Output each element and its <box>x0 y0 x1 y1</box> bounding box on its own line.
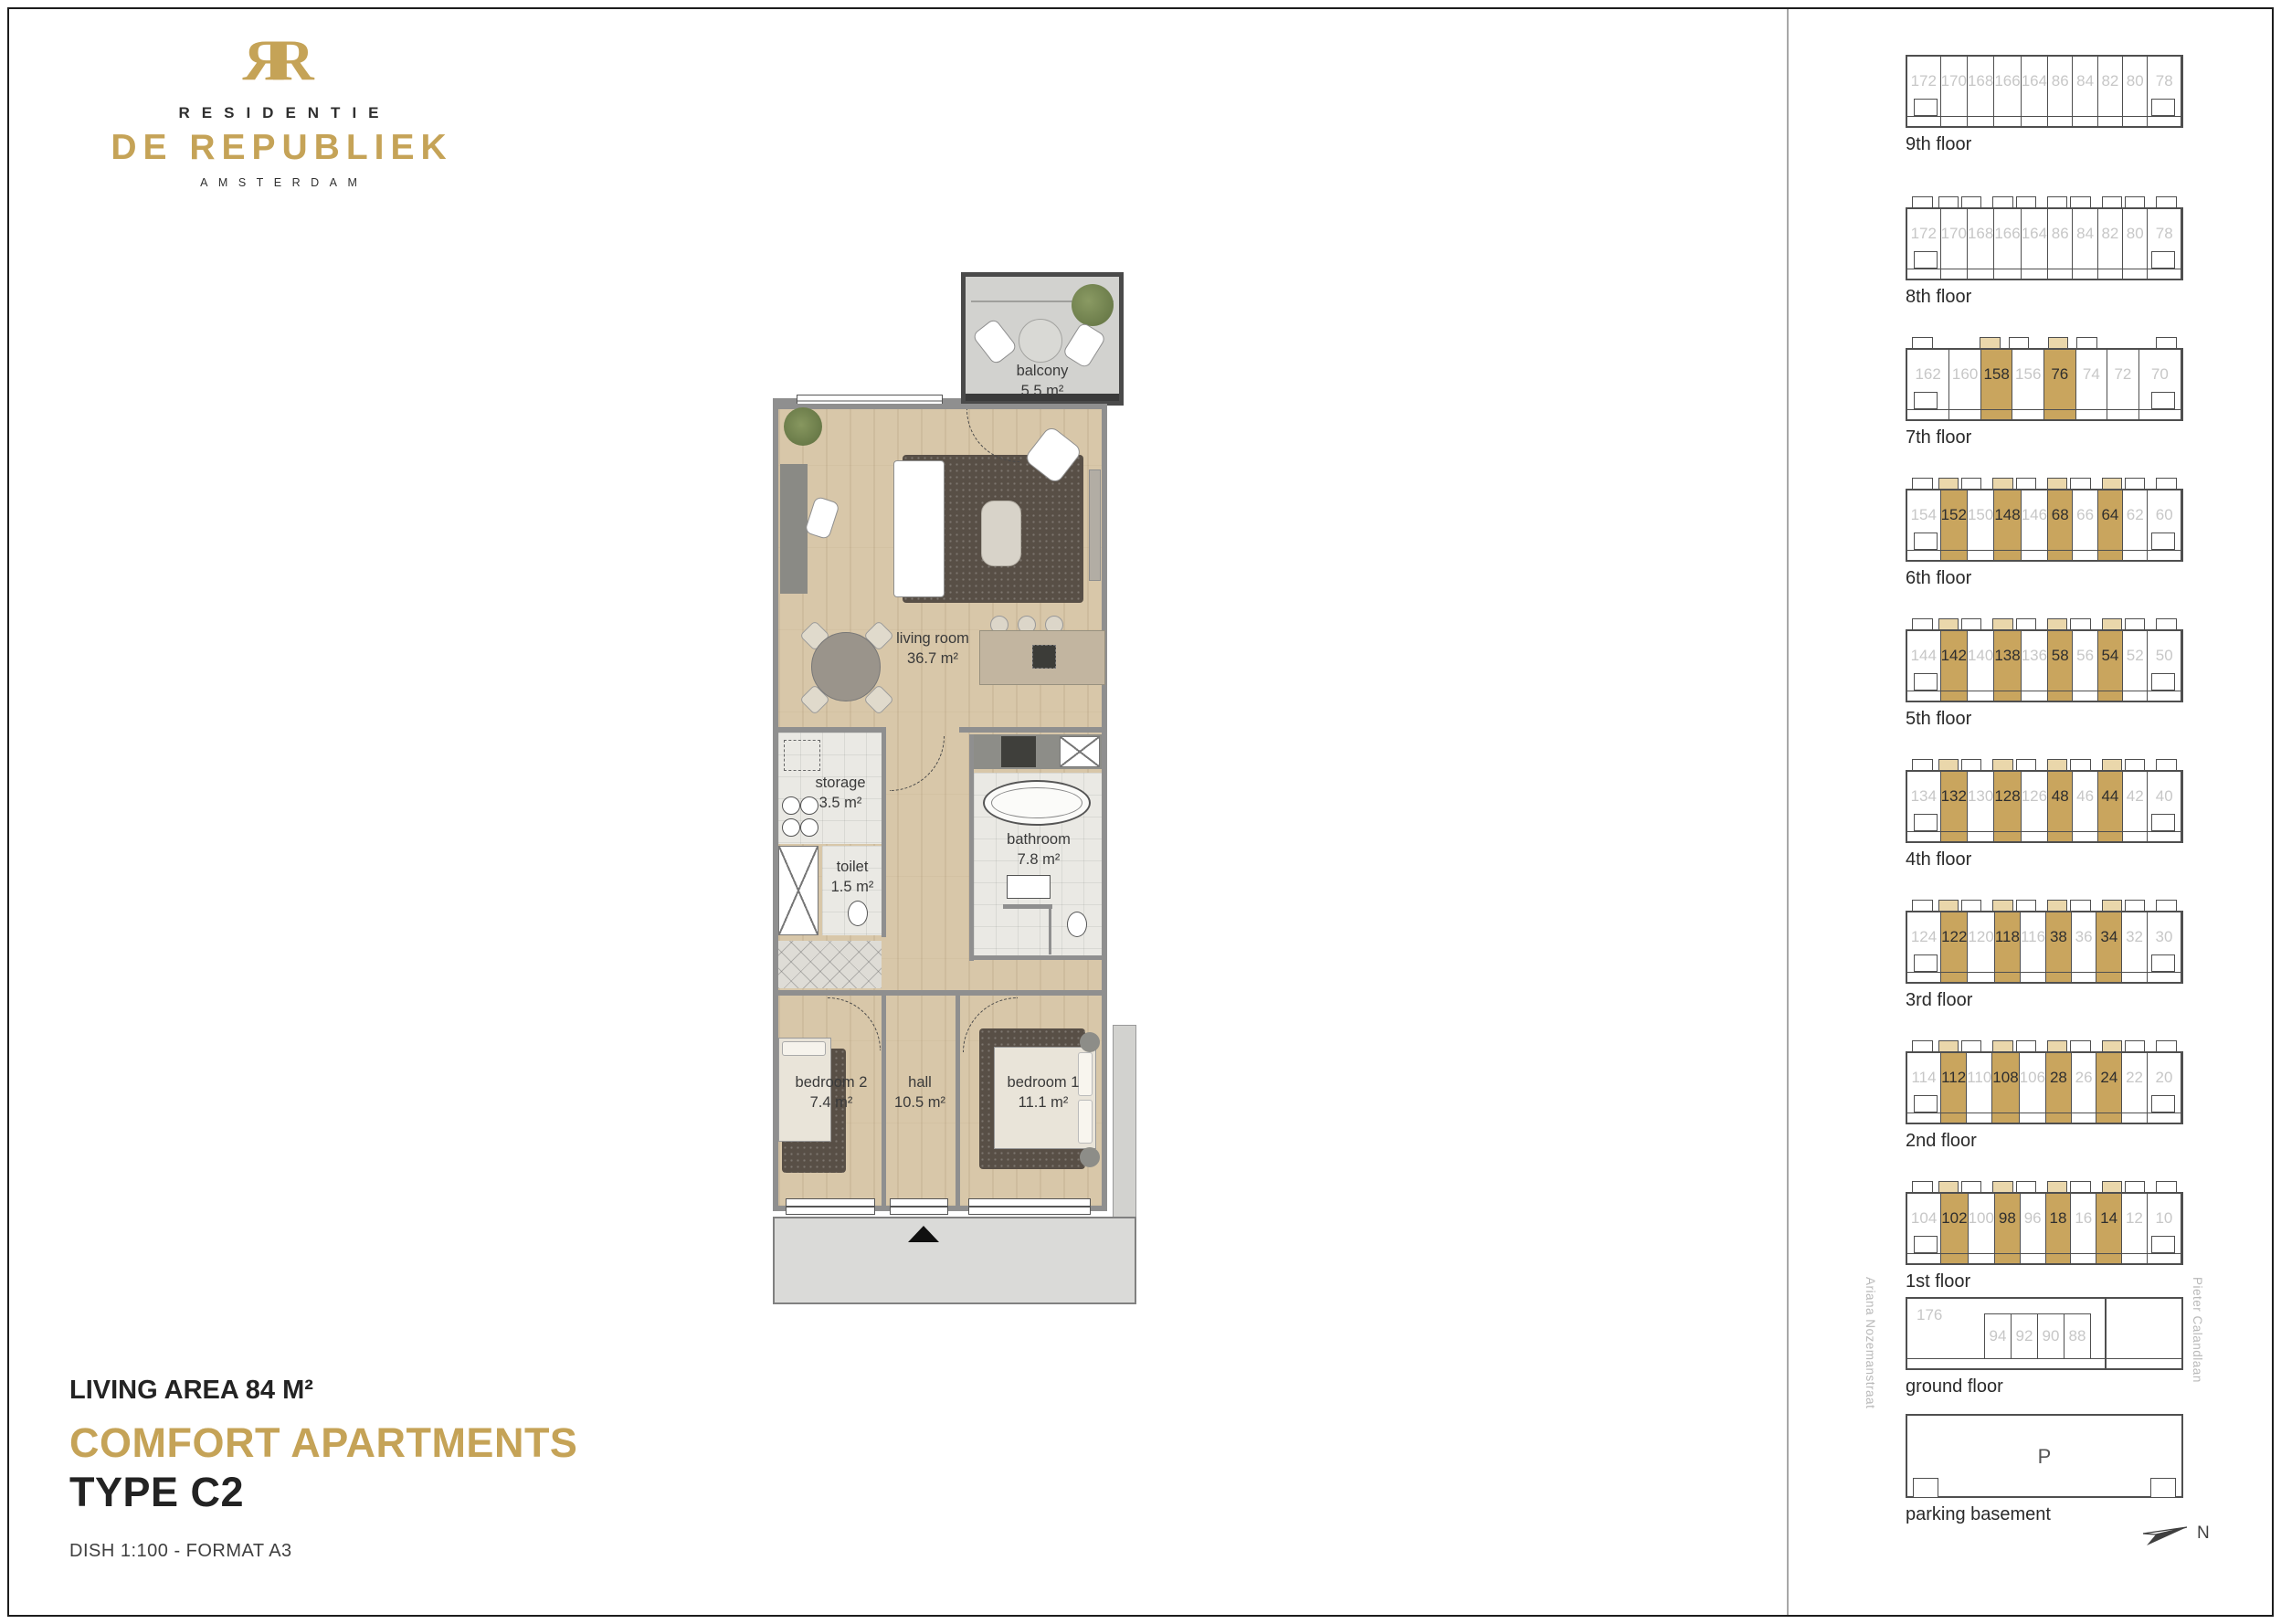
floor-diagram-2nd-floor: 11411211010810628262422202nd floor <box>1906 1039 2183 1152</box>
toilet-fixture <box>848 901 868 926</box>
coffee-table <box>981 501 1021 566</box>
room-label-balcony: balcony 5.5 m² <box>966 361 1119 402</box>
scale-note: DISH 1:100 - FORMAT A3 <box>69 1541 577 1562</box>
utility-floor <box>778 941 882 988</box>
balcony-tabs <box>1908 477 2181 489</box>
title-block: LIVING AREA 84 M² COMFORT APARTMENTS TYP… <box>69 1376 577 1562</box>
plant-icon <box>784 407 822 446</box>
wall <box>882 733 886 937</box>
floor-label: ground floor <box>1906 1376 2183 1397</box>
washer-icon <box>782 796 800 815</box>
shower-wall <box>1003 904 1052 909</box>
ground-strip: 176 94929088 <box>1906 1297 2183 1370</box>
floor-strip: 16216015815676747270 <box>1906 348 2183 421</box>
toilet-fixture <box>1067 912 1087 937</box>
floor-diagram-3rd-floor: 12412212011811638363432303rd floor <box>1906 899 2183 1011</box>
ground-units: 94929088 <box>1984 1313 2091 1358</box>
balcony-table <box>1019 319 1062 363</box>
ground-floor-diagram: 176 94929088 ground floor <box>1906 1297 2183 1397</box>
bedroom1-window <box>968 1198 1091 1215</box>
room-label-bedroom1: bedroom 1 11.1 m² <box>992 1072 1094 1113</box>
floor-diagram-8th-floor: 17217016816616486848280788th floor <box>1906 195 2183 308</box>
unit-88: 88 <box>2065 1314 2090 1358</box>
floor-label: 4th floor <box>1906 849 2183 870</box>
floor-diagram-4th-floor: 13413213012812648464442404th floor <box>1906 758 2183 870</box>
sidebar: 17217016816616486848280789th floor172170… <box>1860 0 2244 1624</box>
bathtub <box>983 780 1091 826</box>
entrance-arrow-icon <box>908 1226 939 1242</box>
entrance-door <box>890 1198 948 1215</box>
headline-text: COMFORT APARTMENTS <box>69 1419 577 1467</box>
floor-diagram-5th-floor: 14414214013813658565452505th floor <box>1906 617 2183 730</box>
floor-label: 9th floor <box>1906 134 2183 155</box>
brand-residentie: RESIDENTIE <box>64 104 493 122</box>
balcony-tabs <box>1908 336 2181 348</box>
floor-label: 6th floor <box>1906 568 2183 589</box>
floor-strip: 1721701681661648684828078 <box>1906 55 2183 128</box>
floor-label: 5th floor <box>1906 709 2183 730</box>
balcony-tabs <box>1908 899 2181 911</box>
storage-dashed-cabinet <box>784 740 820 771</box>
sidebar-divider <box>1787 9 1789 1615</box>
north-label: N <box>2197 1524 2210 1544</box>
room-label-living: living room 36.7 m² <box>864 628 1001 670</box>
unit-90: 90 <box>2038 1314 2065 1358</box>
plant-icon <box>1072 284 1114 326</box>
floor-diagram-6th-floor: 15415215014814668666462606th floor <box>1906 477 2183 589</box>
balcony-tabs <box>1908 617 2181 629</box>
living-area-text: LIVING AREA 84 M² <box>69 1376 577 1406</box>
balcony-tabs <box>1908 195 2181 207</box>
washer-icon <box>800 818 818 837</box>
north-arrow-icon <box>2141 1520 2189 1547</box>
walkway <box>773 1217 1136 1304</box>
north-arrow: N <box>2141 1520 2210 1547</box>
floor-label: 1st floor <box>1906 1271 2183 1292</box>
side-table <box>1080 1147 1100 1167</box>
room-label-bedroom2: bedroom 2 7.4 m² <box>787 1072 875 1113</box>
room-label-hall: hall 10.5 m² <box>882 1072 957 1113</box>
balcony-unit: balcony 5.5 m² <box>961 272 1124 406</box>
floor-plan: balcony 5.5 m² living room 36.7 m² stora… <box>773 272 1136 1315</box>
tv-cabinet <box>780 464 808 594</box>
balcony-tabs <box>1908 1039 2181 1051</box>
floor-label: 7th floor <box>1906 427 2183 448</box>
wall <box>773 990 1107 996</box>
floor-strip: 1721701681661648684828078 <box>1906 207 2183 280</box>
washer-icon <box>782 818 800 837</box>
floor-strip: 1541521501481466866646260 <box>1906 489 2183 562</box>
ground-band <box>1907 1358 2181 1368</box>
shower-tray <box>1060 736 1100 767</box>
floor-diagram-9th-floor: 17217016816616486848280789th floor <box>1906 55 2183 155</box>
unit-92: 92 <box>2012 1314 2038 1358</box>
brand-monogram: RR <box>64 31 493 90</box>
parking-symbol: P <box>1907 1445 2181 1469</box>
floor-strip: 1141121101081062826242220 <box>1906 1051 2183 1124</box>
floor-strip: 1341321301281264846444240 <box>1906 770 2183 843</box>
logo-block: RR RESIDENTIE DE REPUBLIEK AMSTERDAM <box>64 31 493 189</box>
bedroom2-window <box>786 1198 875 1215</box>
street-label-left: Ariana Nozemanstraat <box>1864 1277 1877 1441</box>
cooktop <box>1032 645 1056 669</box>
street-label-right: Pieter Calandlaan <box>2191 1277 2204 1441</box>
type-text: TYPE C2 <box>69 1469 577 1516</box>
floor-label: 2nd floor <box>1906 1131 2183 1152</box>
brand-name: DE REPUBLIEK <box>64 128 493 168</box>
bedroom2-pillow <box>782 1041 826 1056</box>
balcony-tabs <box>1908 758 2181 770</box>
bathtub-inner <box>991 787 1082 818</box>
floor-diagram-7th-floor: 162160158156767472707th floor <box>1906 336 2183 448</box>
floor-diagram-1st-floor: 104102100989618161412101st floor <box>1906 1180 2183 1292</box>
shower-glass <box>1049 909 1051 954</box>
floor-label: 3rd floor <box>1906 990 2183 1011</box>
balcony-tabs <box>1908 1180 2181 1192</box>
floor-strip: 10410210098961816141210 <box>1906 1192 2183 1265</box>
unit-176: 176 <box>1917 1306 1942 1324</box>
room-label-storage: storage 3.5 m² <box>798 773 882 814</box>
parking-box: P <box>1906 1414 2183 1498</box>
side-table <box>1080 1032 1100 1052</box>
brand-city: AMSTERDAM <box>64 176 493 189</box>
shower-closet <box>778 846 818 935</box>
floor-strip: 1241221201181163836343230 <box>1906 911 2183 984</box>
floor-strip: 1441421401381365856545250 <box>1906 629 2183 702</box>
room-label-toilet: toilet 1.5 m² <box>820 857 884 898</box>
parking-diagram: P parking basement <box>1906 1414 2183 1525</box>
floor-label: 8th floor <box>1906 287 2183 308</box>
wall <box>974 955 1107 960</box>
unit-94: 94 <box>1985 1314 2012 1358</box>
room-label-bathroom: bathroom 7.8 m² <box>979 829 1098 870</box>
balcony-chair-left <box>971 318 1018 366</box>
wardrobe-dark-block <box>1001 736 1036 767</box>
sofa <box>893 460 945 597</box>
sink <box>1007 875 1051 899</box>
wall <box>959 727 1107 733</box>
tv-console <box>1089 469 1101 581</box>
